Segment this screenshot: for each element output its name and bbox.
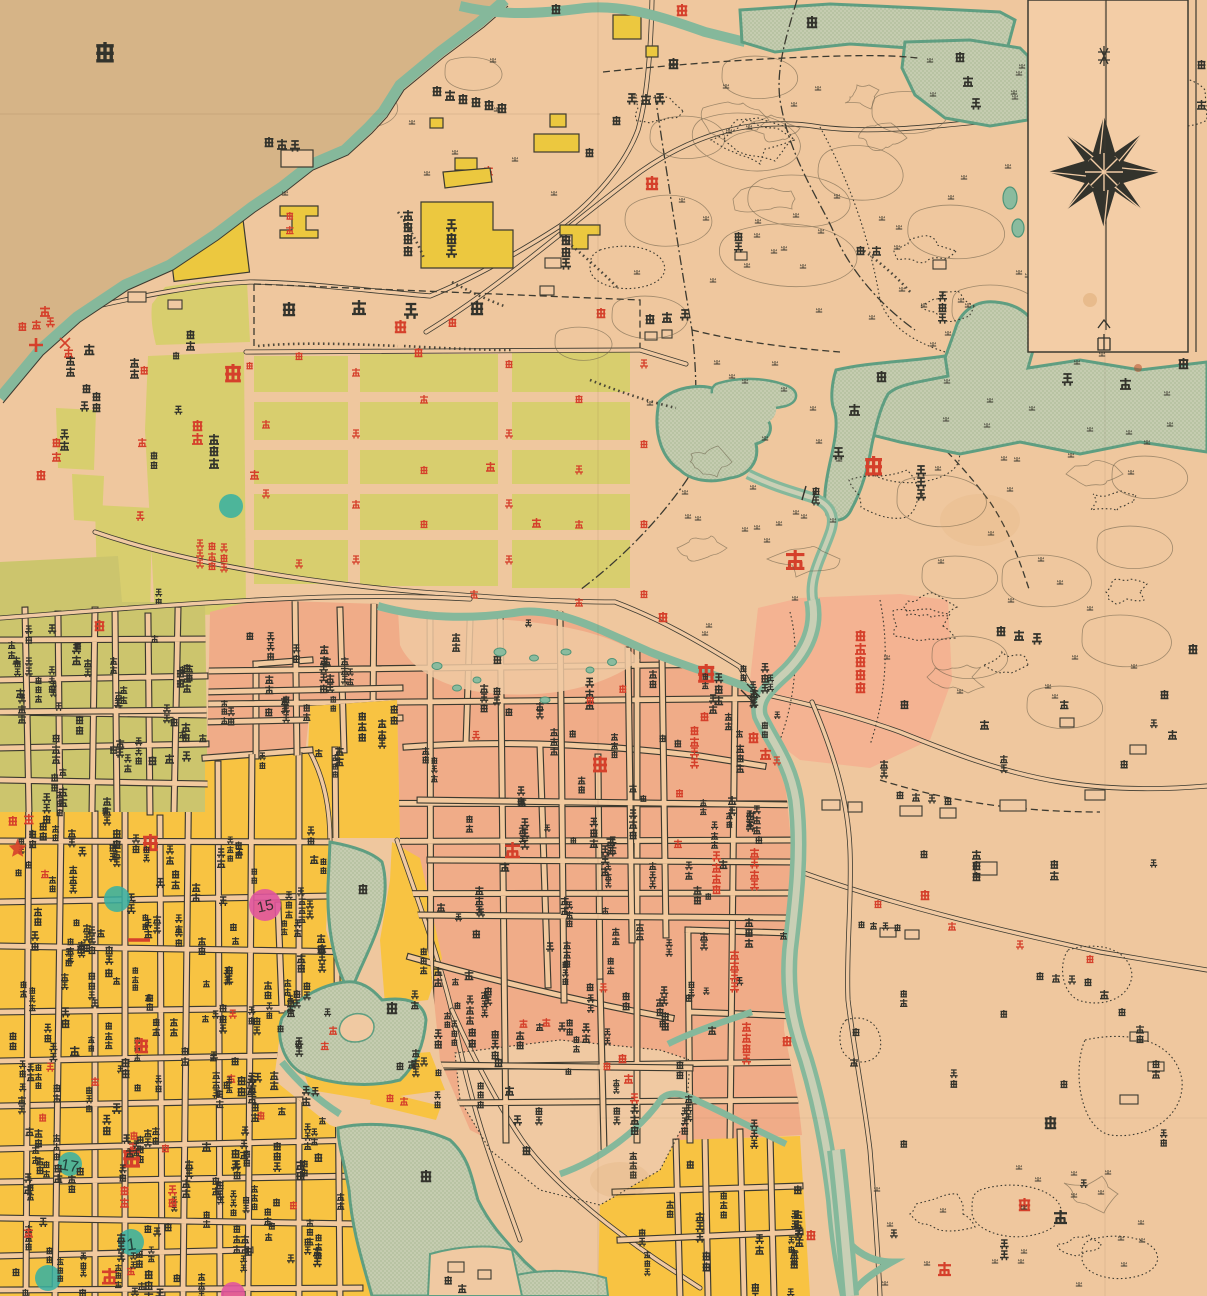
svg-text:15: 15 <box>255 896 275 916</box>
svg-text:17: 17 <box>59 1157 80 1177</box>
